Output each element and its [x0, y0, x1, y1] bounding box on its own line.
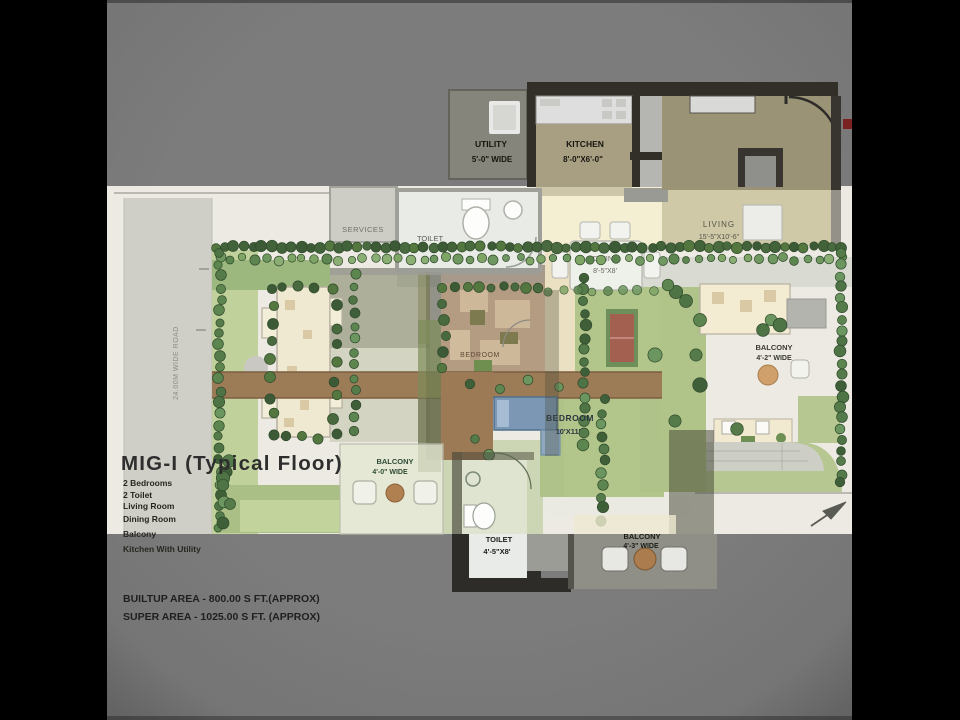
svg-text:2 Toilet: 2 Toilet: [123, 490, 152, 500]
svg-text:4'-3" WIDE: 4'-3" WIDE: [623, 543, 659, 550]
svg-text:TOILET: TOILET: [486, 535, 513, 544]
svg-text:Dining Room: Dining Room: [123, 514, 176, 524]
svg-text:Living Room: Living Room: [123, 501, 175, 511]
svg-text:8'-0"X6'-0": 8'-0"X6'-0": [563, 155, 603, 164]
svg-text:BALCONY: BALCONY: [376, 457, 413, 466]
svg-text:MIG-I (Typical Floor): MIG-I (Typical Floor): [121, 452, 343, 475]
svg-text:LIVING: LIVING: [703, 220, 735, 229]
svg-text:Kitchen With Utility: Kitchen With Utility: [123, 544, 201, 554]
svg-text:UTILITY: UTILITY: [475, 139, 507, 149]
svg-text:10'X11': 10'X11': [556, 427, 581, 436]
svg-text:Balcony: Balcony: [123, 529, 156, 539]
svg-text:24.00M WIDE ROAD: 24.00M WIDE ROAD: [173, 326, 180, 400]
svg-text:SUPER AREA - 1025.00 S FT. (AP: SUPER AREA - 1025.00 S FT. (APPROX): [123, 611, 320, 623]
svg-text:2 Bedrooms: 2 Bedrooms: [123, 478, 172, 488]
svg-text:5'-0" WIDE: 5'-0" WIDE: [472, 155, 513, 164]
svg-text:KITCHEN: KITCHEN: [566, 139, 604, 149]
svg-text:BALCONY: BALCONY: [755, 343, 792, 352]
svg-text:BUILTUP AREA - 800.00 S FT.(AP: BUILTUP AREA - 800.00 S FT.(APPROX): [123, 593, 320, 605]
svg-text:SERVICES: SERVICES: [342, 225, 384, 234]
svg-text:4'-0" WIDE: 4'-0" WIDE: [372, 469, 408, 476]
svg-text:BEDROOM: BEDROOM: [460, 352, 500, 359]
svg-text:4'-2" WIDE: 4'-2" WIDE: [756, 355, 792, 362]
svg-text:15'-5"X10'-6": 15'-5"X10'-6": [699, 234, 740, 241]
svg-text:8'-5"X8': 8'-5"X8': [593, 268, 617, 275]
svg-text:TOILET: TOILET: [417, 234, 444, 243]
svg-text:4'-5"X8': 4'-5"X8': [483, 547, 510, 556]
